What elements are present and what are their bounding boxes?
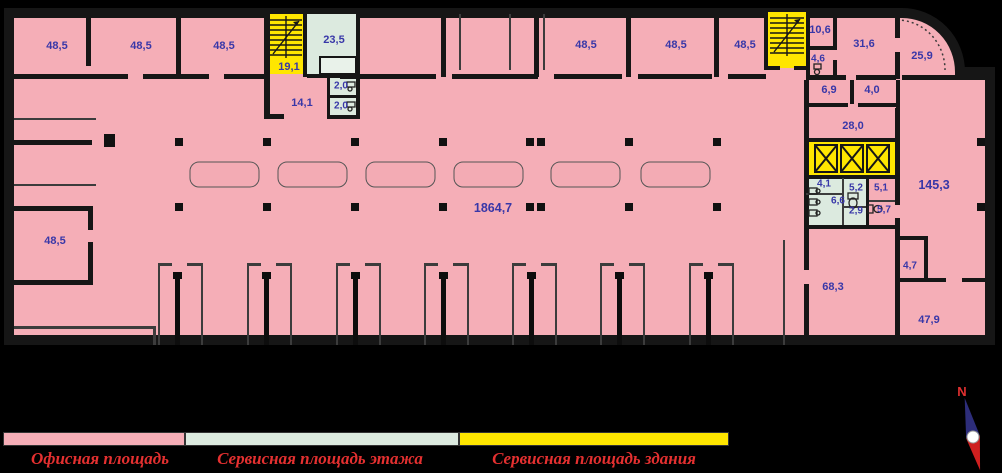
room-area-label: 4,0 <box>864 84 879 96</box>
room-area-label: 48,5 <box>575 39 596 51</box>
hall-area-label: 1864,7 <box>474 201 512 215</box>
legend: Офисная площадь Сервисная площадь этажа … <box>0 428 740 473</box>
room-area-label: 4,7 <box>903 261 917 272</box>
room-area-label: 145,3 <box>918 178 949 192</box>
room-area-label: 2,0 <box>334 101 348 112</box>
room-area-label: 19,1 <box>278 61 299 73</box>
room-area-label: 10,6 <box>809 24 830 36</box>
room-area-label: 2,0 <box>334 81 348 92</box>
legend-swatch-service-building <box>459 432 729 446</box>
room-area-label: 5,2 <box>849 183 863 194</box>
room-area-label: 48,5 <box>44 235 65 247</box>
room-area-label: 48,5 <box>665 39 686 51</box>
room-area-label: 23,5 <box>323 34 344 46</box>
legend-label-office: Офисная площадь <box>31 449 169 469</box>
room-area-label: 48,5 <box>213 40 234 52</box>
room-area-label: 47,9 <box>918 314 939 326</box>
room-area-label: 6,9 <box>821 84 836 96</box>
legend-label-service-building: Сервисная площадь здания <box>492 449 696 469</box>
legend-swatch-service-floor <box>185 432 459 446</box>
room-area-label: 2,9 <box>849 206 863 217</box>
room-area-label: 5,1 <box>874 183 888 194</box>
legend-label-service-floor: Сервисная площадь этажа <box>217 449 423 469</box>
floor-plan-canvas: 48,5 48,5 48,5 19,1 23,5 14,1 2,0 2,0 48… <box>0 0 1002 473</box>
compass: N <box>940 380 1002 473</box>
room-area-label: 31,6 <box>853 38 874 50</box>
room-area-label: 48,5 <box>130 40 151 52</box>
room-area-label: 4,1 <box>817 179 831 190</box>
room-area-label: 25,9 <box>911 50 932 62</box>
room-area-label: 48,5 <box>46 40 67 52</box>
room-area-label: 14,1 <box>291 97 312 109</box>
room-area-label: 48,5 <box>734 39 755 51</box>
room-area-label: 68,3 <box>822 281 843 293</box>
floor-plan-drawing <box>0 0 1002 473</box>
compass-north-label: N <box>957 384 966 399</box>
room-area-label: 6,6 <box>831 196 845 207</box>
compass-needle <box>940 380 1002 473</box>
room-area-label: 4,6 <box>811 54 825 65</box>
legend-swatch-office <box>3 432 185 446</box>
room-area-label: 5,7 <box>877 205 891 216</box>
room-area-label: 28,0 <box>842 120 863 132</box>
